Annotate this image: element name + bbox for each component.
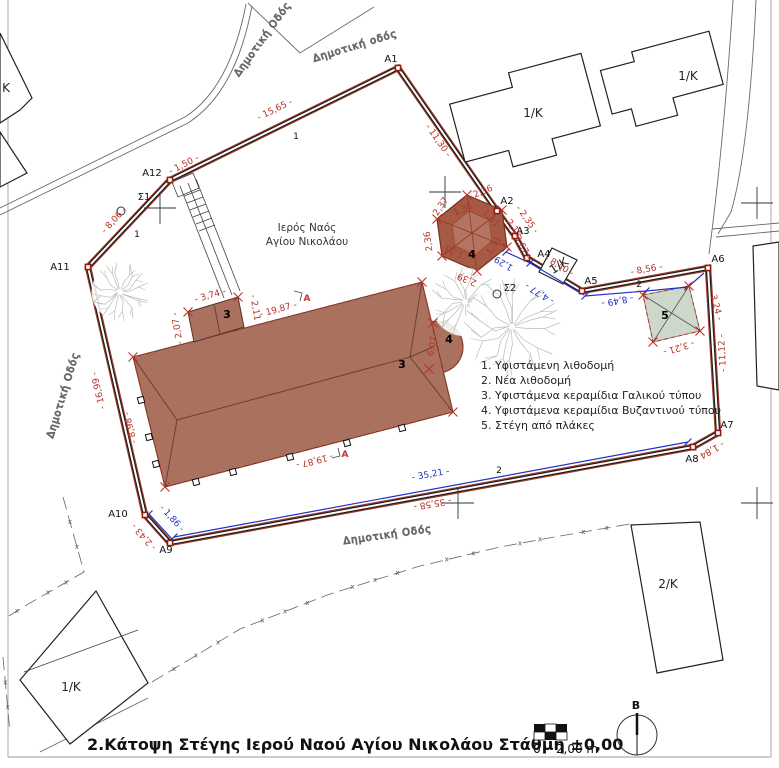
- boundary-point-marker: [579, 288, 584, 293]
- fence-x-mark: x: [605, 524, 609, 532]
- boundary-point-marker: [690, 444, 695, 449]
- legend-item: 5. Στέγη από πλάκες: [481, 419, 595, 432]
- north-label: B: [632, 699, 640, 712]
- line-number: 1: [293, 132, 299, 142]
- road-label: Δημοτική Οδός: [231, 0, 293, 79]
- tree: [92, 263, 149, 321]
- church-roof: [133, 282, 463, 487]
- fence-x-mark: x: [3, 678, 7, 686]
- line-number: 1: [134, 230, 140, 240]
- site-plan-drawing: xxxxxxxxxxxxxxxxxxxxxx 1. Υφιστάμενη λιθ…: [0, 0, 779, 768]
- roof-tick: [192, 478, 199, 485]
- fence-x-mark: x: [395, 569, 399, 577]
- site-plan-page: xxxxxxxxxxxxxxxxxxxxxx 1. Υφιστάμενη λιθ…: [0, 0, 779, 768]
- survey-cross: [741, 487, 773, 519]
- fence-x-mark: x: [6, 704, 10, 712]
- building-label: 1/K: [523, 106, 544, 120]
- section-marker: A: [304, 294, 311, 304]
- legend-item: 3. Υφιστάμενα κεραμίδια Γαλικού τύπου: [481, 389, 701, 402]
- building-label: 1/K: [61, 680, 82, 694]
- roof-number: 5: [661, 309, 669, 322]
- point-label: A8: [685, 454, 698, 465]
- fence-x-mark: x: [283, 608, 287, 616]
- fence-x-mark: x: [373, 576, 377, 584]
- point-label: A2: [500, 196, 513, 207]
- dimension-blue: - 35,21 -: [411, 467, 450, 483]
- fence-x-mark: x: [260, 616, 264, 624]
- roof-tick: [145, 433, 152, 440]
- point-label: A1: [384, 54, 397, 65]
- roof-tick: [152, 460, 159, 467]
- boundary-point-marker: [705, 265, 710, 270]
- road-label: Δημοτική Οδός: [342, 523, 432, 547]
- fence-x-mark: x: [68, 518, 72, 526]
- point-label: Σ1: [138, 192, 151, 203]
- slab-roof-structure: [643, 286, 700, 342]
- roof-tick: [343, 439, 350, 446]
- fence-line: [3, 657, 10, 733]
- fence-line: [4, 497, 84, 619]
- boundary-point-marker: [395, 65, 400, 70]
- legend-item: 4. Υφιστάμενα κεραμίδια Βυζαντινού τύπου: [481, 404, 721, 417]
- legend-item: 1. Υφιστάμενη λιθοδομή: [481, 359, 614, 372]
- point-label: Σ2: [504, 283, 517, 294]
- point-label: A6: [711, 254, 724, 265]
- roof-tick: [137, 396, 144, 403]
- fence-x-mark: x: [15, 607, 19, 615]
- building-label: K: [2, 81, 11, 95]
- fence-line: [152, 524, 630, 682]
- scale-value: 2,00 m: [556, 742, 598, 756]
- fence-x-mark: x: [194, 652, 198, 660]
- roof-number: 4: [468, 248, 476, 261]
- building-outline: [598, 31, 728, 131]
- dimension-red: - 19,87 -: [295, 450, 334, 469]
- point-label: A5: [584, 276, 597, 287]
- point-label: A9: [159, 545, 172, 556]
- boundary-point-marker: [167, 177, 172, 182]
- point-label: A11: [50, 262, 70, 273]
- building-outline: [0, 132, 27, 187]
- staircase: [172, 173, 240, 298]
- dimension-red: - 11,12 -: [717, 334, 729, 372]
- church-name-line1: Ιερός Ναός: [278, 222, 337, 234]
- line-number: 2: [496, 466, 502, 476]
- survey-cross: [741, 187, 773, 219]
- road-label: Δημοτική Οδός: [44, 351, 82, 440]
- dimension-red: - 3,21 -: [662, 337, 696, 356]
- section-marker: A: [342, 450, 349, 460]
- fence-x-mark: x: [518, 539, 522, 547]
- boundary-point-marker: [715, 430, 720, 435]
- fence-x-mark: x: [216, 638, 220, 646]
- roof-tick: [229, 468, 236, 475]
- roof-number: 3: [398, 358, 406, 371]
- point-label: A7: [720, 420, 733, 431]
- roof-number: 4: [445, 333, 453, 346]
- building-outline: [20, 591, 148, 744]
- fence-x-mark: x: [538, 536, 542, 544]
- boundary-point-marker: [142, 512, 147, 517]
- fence-x-mark: x: [172, 665, 176, 673]
- fence-x-mark: x: [581, 528, 585, 536]
- fence-x-mark: x: [445, 556, 449, 564]
- roof-tick: [398, 424, 405, 431]
- legend-item: 2. Νέα λιθοδομή: [481, 374, 571, 387]
- roof-number: 3: [223, 308, 231, 321]
- scale-zero: 0: [533, 742, 541, 756]
- church-name: Ιερός Ναός Αγίου Νικολάου: [266, 222, 348, 248]
- building-outline: [631, 522, 723, 673]
- fence-x-mark: x: [471, 549, 475, 557]
- building-outline: [0, 33, 32, 123]
- fence-x-mark: x: [305, 599, 309, 607]
- dimension-red: 2,36: [423, 230, 436, 252]
- point-label: A10: [108, 509, 128, 520]
- fence-x-mark: x: [75, 543, 79, 551]
- fence-x-mark: x: [350, 583, 354, 591]
- building-label: 2/K: [658, 577, 679, 591]
- fence-x-mark: x: [46, 589, 50, 597]
- building-label: 1/K: [678, 69, 699, 83]
- point-label: A12: [142, 168, 162, 179]
- church-name-line2: Αγίου Νικολάου: [266, 236, 348, 248]
- dimension-red: - 16,99 -: [90, 371, 108, 410]
- legend: 1. Υφιστάμενη λιθοδομή 2. Νέα λιθοδομή 3…: [481, 359, 721, 432]
- boundary-point-marker: [494, 208, 499, 213]
- fence-x-mark: x: [64, 578, 68, 586]
- dimension-red: - 2,07 -: [170, 312, 185, 346]
- building-outline: [753, 242, 779, 390]
- boundary-point-marker: [85, 264, 90, 269]
- roof-tick: [286, 453, 293, 460]
- line-number: 2: [636, 280, 642, 290]
- point-label: A3: [516, 226, 529, 237]
- point-label: A4: [537, 249, 550, 260]
